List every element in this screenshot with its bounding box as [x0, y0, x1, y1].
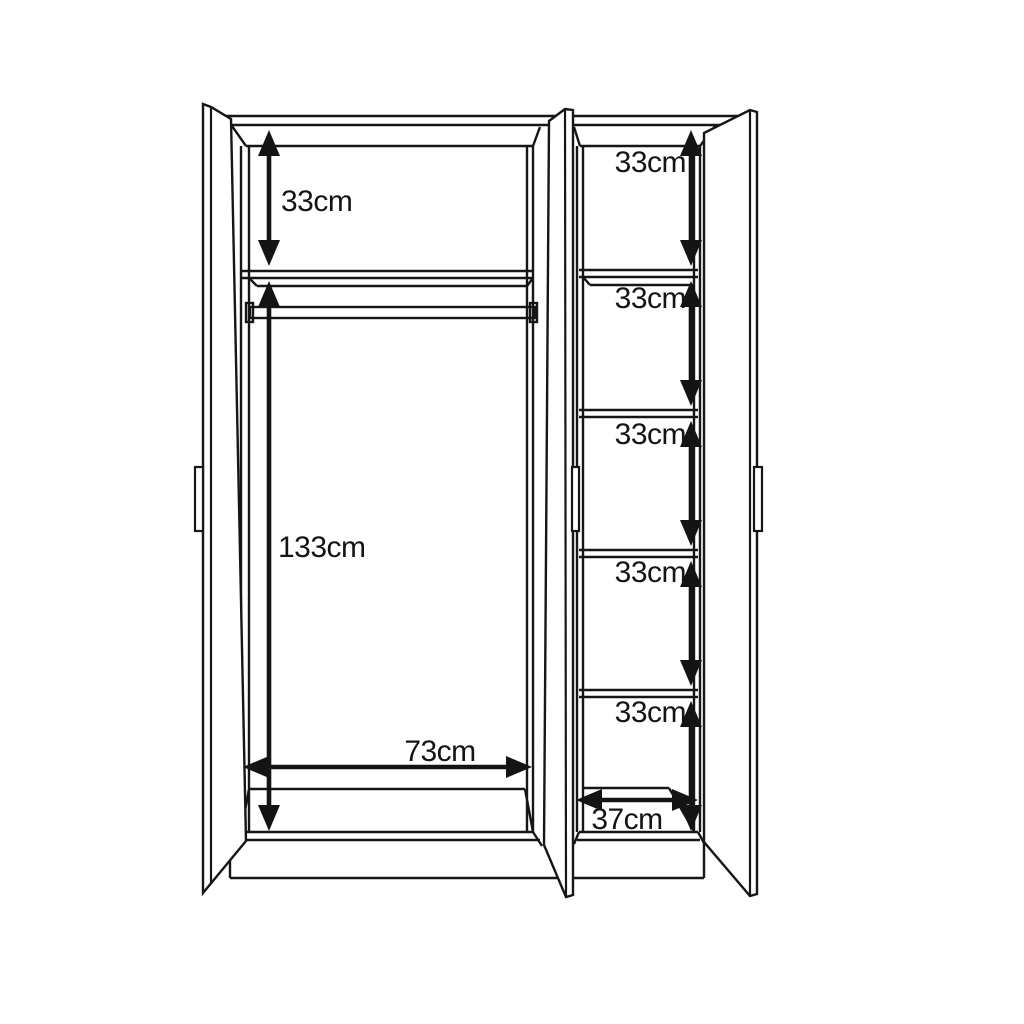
- dim-label-right-shelf-1: 33cm: [615, 146, 686, 179]
- middle-door: [544, 109, 579, 897]
- middle-door-panel: [544, 109, 573, 897]
- shelf: [579, 410, 698, 417]
- dim-right-width: 37cm: [576, 789, 698, 836]
- right-compartment-frame: [574, 126, 715, 878]
- wardrobe-dimension-diagram: 33cm 133cm 73cm 33cm 33cm: [0, 0, 1024, 1024]
- dim-label-right-shelf-2: 33cm: [615, 282, 686, 315]
- left-door-handle: [195, 467, 203, 531]
- dim-left-width: 73cm: [243, 735, 532, 778]
- dim-label-left-width: 73cm: [404, 735, 475, 768]
- dim-right-shelf-3: 33cm: [615, 418, 702, 546]
- dim-left-top-shelf-height: 33cm: [258, 130, 352, 266]
- top-band: [224, 116, 740, 125]
- hanging-rail: [246, 303, 537, 322]
- dim-right-shelf-4: 33cm: [615, 556, 702, 686]
- dim-right-shelf-2: 33cm: [615, 281, 702, 406]
- right-door-handle: [754, 467, 762, 531]
- dimensions: 33cm 133cm 73cm 33cm 33cm: [243, 130, 702, 836]
- top-shelf: [241, 271, 533, 286]
- dim-label-right-shelf-3: 33cm: [615, 418, 686, 451]
- dim-label-left-hanging-height: 133cm: [278, 531, 366, 564]
- middle-door-handle: [572, 467, 579, 531]
- dim-right-shelf-1: 33cm: [615, 130, 702, 266]
- right-compartment: [574, 126, 715, 878]
- middle-door-fold-edge: [565, 110, 566, 896]
- left-door-panel: [203, 104, 246, 893]
- dim-left-hanging-height: 133cm: [258, 281, 366, 831]
- dim-label-right-shelf-4: 33cm: [615, 556, 686, 589]
- dim-label-right-width: 37cm: [591, 803, 662, 836]
- left-door: [195, 104, 246, 893]
- diagram-canvas: 33cm 133cm 73cm 33cm 33cm: [0, 0, 1024, 1024]
- dim-label-right-shelf-5: 33cm: [615, 696, 686, 729]
- dim-label-left-top-shelf-height: 33cm: [281, 185, 352, 218]
- right-door: [704, 110, 762, 896]
- carcass: [224, 116, 740, 878]
